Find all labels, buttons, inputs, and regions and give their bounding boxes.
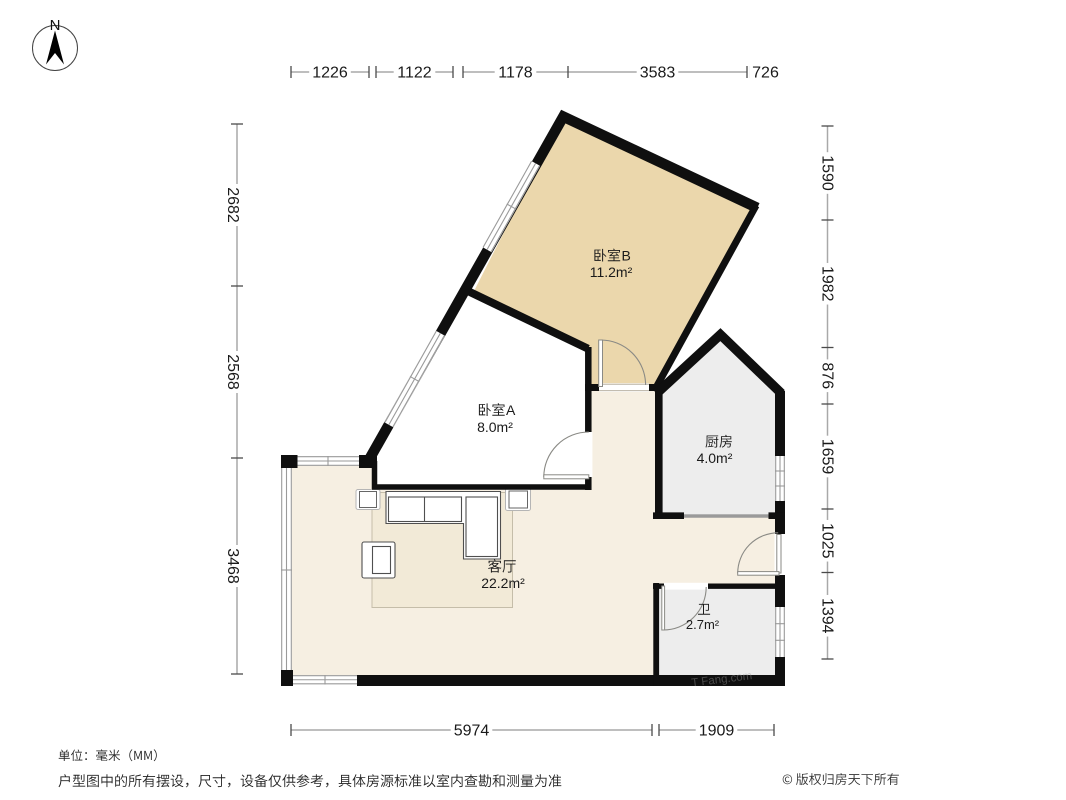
svg-text:2682: 2682	[224, 187, 241, 223]
svg-text:22.2m²: 22.2m²	[481, 575, 525, 591]
svg-text:1178: 1178	[498, 65, 533, 82]
svg-text:11.2m²: 11.2m²	[590, 264, 633, 280]
svg-text:726: 726	[752, 65, 779, 82]
svg-text:1909: 1909	[699, 723, 735, 740]
svg-text:4.0m²: 4.0m²	[697, 450, 733, 466]
svg-text:1982: 1982	[819, 266, 836, 302]
svg-text:5974: 5974	[454, 723, 490, 740]
svg-text:1025: 1025	[819, 523, 836, 559]
svg-text:8.0m²: 8.0m²	[477, 419, 513, 435]
svg-text:1122: 1122	[397, 65, 432, 82]
svg-text:A: A	[506, 402, 516, 418]
svg-text:1226: 1226	[312, 65, 348, 82]
svg-text:1394: 1394	[819, 598, 836, 634]
svg-text:2568: 2568	[224, 354, 241, 390]
svg-text:876: 876	[819, 362, 836, 389]
svg-text:3468: 3468	[224, 548, 241, 584]
svg-text:2.7m²: 2.7m²	[686, 617, 720, 632]
svg-text:1590: 1590	[819, 155, 836, 191]
svg-text:3583: 3583	[640, 65, 676, 82]
svg-text:B: B	[622, 248, 631, 264]
svg-text:1659: 1659	[819, 439, 836, 475]
